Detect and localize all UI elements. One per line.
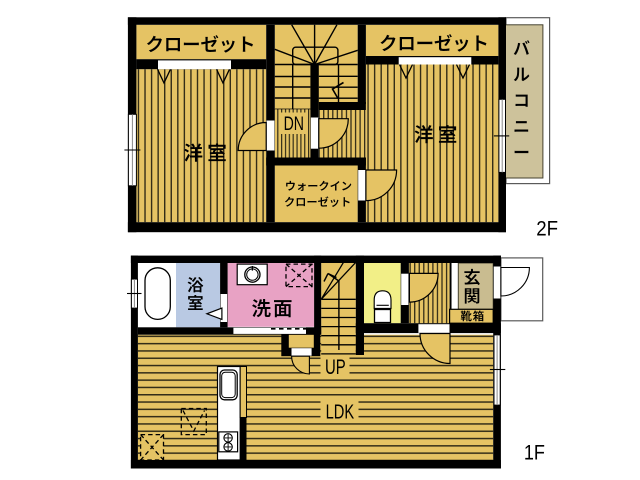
svg-text:LDK: LDK: [326, 400, 355, 423]
svg-text:1F: 1F: [524, 441, 545, 465]
svg-text:UP: UP: [325, 356, 346, 379]
svg-text:DN: DN: [284, 113, 304, 135]
svg-text:2F: 2F: [536, 217, 558, 240]
